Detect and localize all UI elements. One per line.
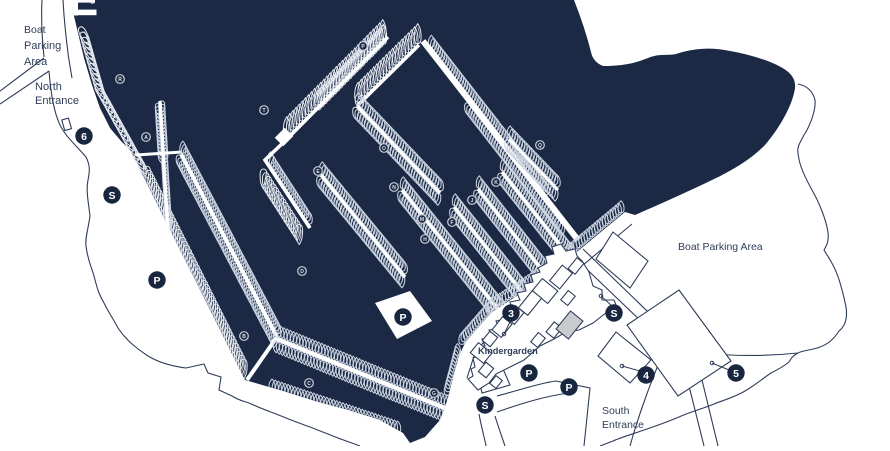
svg-text:P: P [525,368,532,380]
svg-text:S: S [481,400,488,412]
svg-text:3: 3 [508,308,514,320]
svg-text:6: 6 [81,131,87,143]
svg-text:Q: Q [538,143,542,149]
svg-text:M: M [420,217,424,223]
svg-text:P: P [153,275,160,287]
svg-text:S: S [108,190,115,202]
svg-text:N: N [392,185,396,191]
svg-text:5: 5 [733,368,739,380]
svg-text:S: S [610,308,617,320]
svg-text:Boat Parking Area: Boat Parking Area [678,241,763,253]
svg-text:B: B [242,334,246,340]
svg-text:F: F [450,220,453,226]
svg-text:D: D [300,269,304,275]
svg-text:Entrance: Entrance [602,419,644,431]
svg-text:P: P [565,382,572,394]
svg-text:A: A [144,135,148,141]
svg-text:T: T [262,108,265,114]
svg-text:R: R [118,77,122,83]
svg-text:J: J [471,198,474,204]
svg-text:K: K [494,180,498,186]
svg-text:South: South [602,405,630,417]
svg-text:G: G [432,391,436,397]
svg-text:North: North [35,81,62,93]
svg-text:C: C [307,381,311,387]
svg-text:Area: Area [24,56,48,68]
svg-text:P: P [399,312,406,324]
svg-text:O: O [382,146,386,152]
svg-text:Kindergarden: Kindergarden [478,346,538,356]
svg-text:Boat: Boat [24,24,46,36]
svg-text:Entrance: Entrance [35,95,79,107]
svg-text:4: 4 [643,370,649,382]
svg-text:Parking: Parking [24,40,61,52]
svg-text:H: H [423,237,427,243]
